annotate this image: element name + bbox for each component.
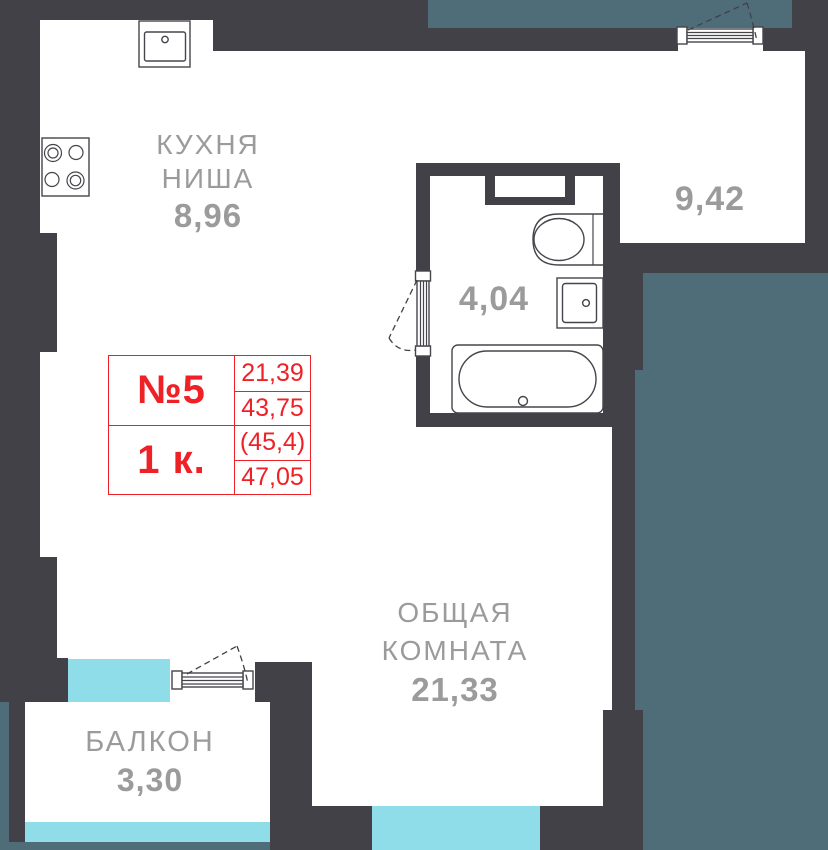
unit-info-table: №5 1 к. 21,39 43,75 (45,4) 47,05 — [108, 355, 311, 495]
window-icon — [677, 3, 763, 44]
unit-room-count: 1 к. — [109, 425, 235, 494]
washbasin-icon — [557, 278, 603, 328]
bathroom-area: 4,04 — [429, 280, 559, 319]
balcony-label: БАЛКОН 3,30 — [50, 724, 250, 800]
toilet-icon — [533, 214, 603, 265]
living-room-name-line1: ОБЩАЯ — [355, 594, 555, 632]
stove-icon — [42, 138, 89, 196]
kitchen-label: КУХНЯ НИША 8,96 — [108, 128, 308, 236]
unit-number: №5 — [109, 356, 235, 425]
living-room-name-line2: КОМНАТА — [355, 632, 555, 670]
kitchen-area: 8,96 — [108, 196, 308, 236]
balcony-area: 3,30 — [50, 760, 250, 800]
kitchen-sink-icon — [139, 21, 190, 67]
unit-area-without-balcony: 43,75 — [235, 391, 310, 426]
unit-living-area: 21,39 — [235, 356, 310, 391]
second-room-area: 9,42 — [645, 180, 775, 219]
unit-total-area: 47,05 — [235, 460, 310, 495]
floor-plan: КУХНЯ НИША 8,96 9,42 4,04 ОБЩАЯ КОМНАТА … — [0, 0, 828, 850]
balcony-window-icon — [172, 646, 253, 689]
bathtub-icon — [452, 345, 603, 413]
balcony-name: БАЛКОН — [50, 724, 250, 760]
living-room-area: 21,33 — [355, 670, 555, 710]
kitchen-name-line2: НИША — [108, 162, 308, 196]
bathroom-label: 4,04 — [429, 280, 559, 319]
bathroom-door-icon — [389, 271, 431, 356]
kitchen-name-line1: КУХНЯ — [108, 128, 308, 162]
second-room-label: 9,42 — [645, 180, 775, 219]
unit-area-with-coeff: (45,4) — [235, 425, 310, 460]
living-room-label: ОБЩАЯ КОМНАТА 21,33 — [355, 594, 555, 710]
